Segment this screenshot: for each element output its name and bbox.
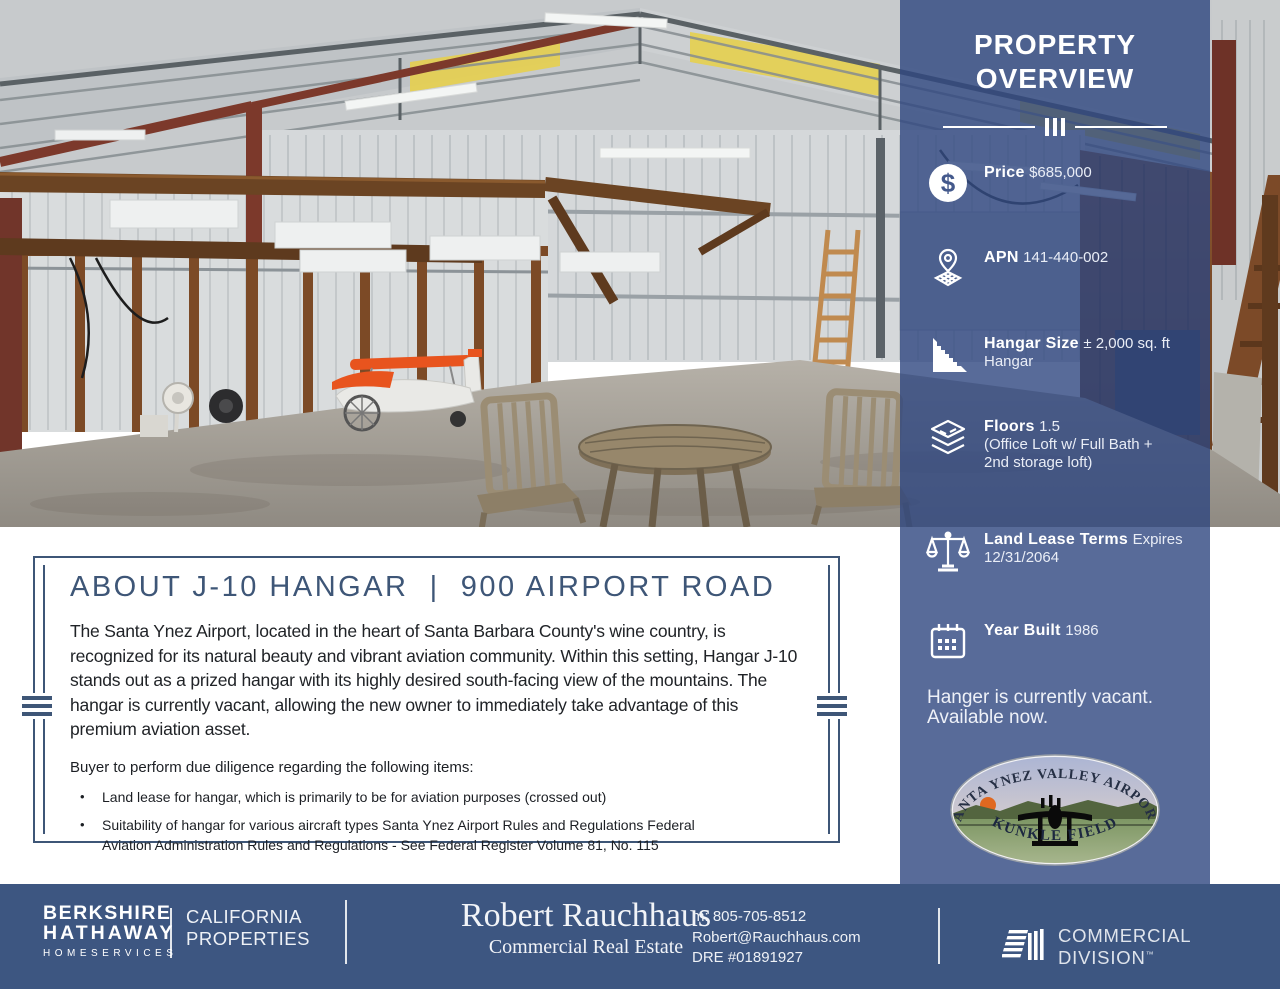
fact-label: Price [984, 164, 1025, 181]
fact-apn: APN 141-440-002 [926, 248, 1196, 294]
trademark: ™ [1146, 950, 1155, 959]
phone: m: 805-705-8512 [692, 907, 861, 928]
fact-label: Year Built [984, 622, 1061, 639]
berkshire-hathaway-logo: BERKSHIRE HATHAWAY HOMESERVICES [43, 903, 177, 959]
layers-icon [926, 417, 970, 472]
california-properties: CALIFORNIA PROPERTIES [186, 906, 310, 950]
brand-line: HOMESERVICES [43, 948, 177, 959]
fact-value: 141-440-002 [1023, 249, 1108, 266]
fact-value: 1986 [1065, 622, 1098, 639]
footer-divider [345, 900, 347, 964]
scale-icon [926, 530, 970, 574]
building-stripes-icon [1002, 927, 1048, 968]
property-overview-panel: PROPERTY OVERVIEW $ Price $685,000 [900, 0, 1210, 884]
list-item: Suitability of hangar for various aircra… [80, 815, 720, 855]
due-diligence-intro: Buyer to perform due diligence regarding… [70, 759, 838, 776]
airport-logo: SANTA YNEZ VALLEY AIRPORT KUNKLE FIELD [948, 753, 1162, 872]
fact-price: $ Price $685,000 [926, 163, 1196, 203]
brand-line: BERKSHIRE [43, 903, 177, 923]
about-section: ABOUT J-10 HANGAR | 900 AIRPORT ROAD The… [33, 556, 840, 843]
availability-note: Hanger is currently vacant. Available no… [927, 688, 1153, 727]
ruler-icon [926, 334, 970, 376]
commercial-division-logo: COMMERCIAL DIVISION™ [1002, 925, 1280, 969]
title-divider [900, 118, 1210, 136]
fact-label: Hangar Size [984, 335, 1079, 352]
list-item: Land lease for hangar, which is primaril… [80, 787, 720, 807]
property-flyer: PROPERTY OVERVIEW $ Price $685,000 [0, 0, 1280, 989]
dre-number: DRE #01891927 [692, 948, 861, 969]
calendar-icon [926, 621, 970, 661]
map-pin-icon [926, 248, 970, 294]
fact-label: APN [984, 249, 1019, 266]
fact-value: $685,000 [1029, 164, 1092, 181]
left-bars-ornament [22, 693, 52, 719]
panel-title: PROPERTY OVERVIEW [900, 28, 1210, 96]
about-paragraph: The Santa Ynez Airport, located in the h… [70, 619, 807, 742]
fact-year-built: Year Built 1986 [926, 621, 1196, 661]
dollar-icon: $ [926, 163, 970, 203]
footer-divider [170, 908, 172, 958]
due-diligence-list: Land lease for hangar, which is primaril… [80, 787, 720, 855]
about-title: ABOUT J-10 HANGAR | 900 AIRPORT ROAD [70, 571, 838, 604]
footer-divider [938, 908, 940, 964]
commercial-division-label: COMMERCIAL DIVISION™ [1058, 925, 1280, 969]
division-line: CALIFORNIA [186, 906, 310, 928]
fact-label: Floors [984, 418, 1035, 435]
fact-floors: Floors 1.5 (Office Loft w/ Full Bath + 2… [926, 417, 1196, 472]
brand-line: HATHAWAY [43, 923, 177, 943]
fact-label: Land Lease Terms [984, 531, 1128, 548]
svg-text:$: $ [941, 168, 956, 198]
triple-bar-ornament [1045, 118, 1065, 136]
right-bars-ornament [817, 693, 847, 719]
division-line: PROPERTIES [186, 928, 310, 950]
footer: BERKSHIRE HATHAWAY HOMESERVICES CALIFORN… [0, 884, 1280, 989]
fact-hangar-size: Hangar Size ± 2,000 sq. ft Hangar [926, 334, 1196, 376]
email: Robert@Rauchhaus.com [692, 928, 861, 949]
fact-land-lease: Land Lease Terms Expires 12/31/2064 [926, 530, 1196, 574]
contact-block: m: 805-705-8512 Robert@Rauchhaus.com DRE… [692, 907, 861, 969]
